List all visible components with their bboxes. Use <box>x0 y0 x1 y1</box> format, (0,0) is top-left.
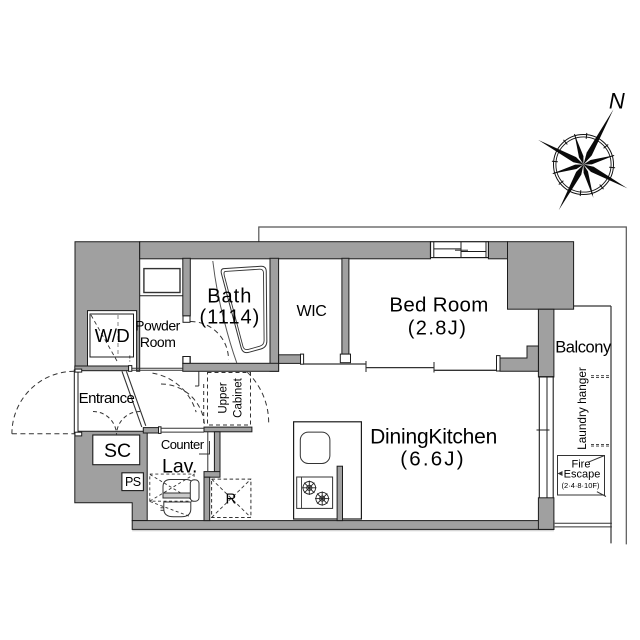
svg-text:(2·4·8·10F): (2·4·8·10F) <box>562 481 600 490</box>
svg-text:Lav.: Lav. <box>162 455 197 477</box>
svg-text:N: N <box>609 89 625 114</box>
svg-text:(6.6J): (6.6J) <box>400 447 466 470</box>
svg-text:Entrance: Entrance <box>79 390 135 407</box>
svg-text:Bath: Bath <box>207 285 252 307</box>
svg-text:DiningKitchen: DiningKitchen <box>370 425 497 448</box>
svg-text:Counter: Counter <box>161 437 205 452</box>
svg-text:WIC: WIC <box>297 303 327 320</box>
svg-text:Laundry hanger: Laundry hanger <box>575 367 589 450</box>
svg-text:Powder: Powder <box>135 317 181 333</box>
svg-text:R: R <box>225 490 236 507</box>
svg-text:(1114): (1114) <box>199 306 260 328</box>
svg-text:SC: SC <box>104 440 131 462</box>
svg-text:Room: Room <box>140 334 176 350</box>
svg-text:(2.8J): (2.8J) <box>408 318 468 340</box>
svg-text:Upper: Upper <box>218 382 230 413</box>
svg-text:Balcony: Balcony <box>555 338 612 356</box>
svg-text:Bed Room: Bed Room <box>389 293 488 316</box>
svg-text:W/D: W/D <box>95 325 130 346</box>
svg-text:PS: PS <box>125 475 141 489</box>
svg-text:Cabinet: Cabinet <box>233 377 245 417</box>
svg-text:Escape: Escape <box>564 469 601 481</box>
